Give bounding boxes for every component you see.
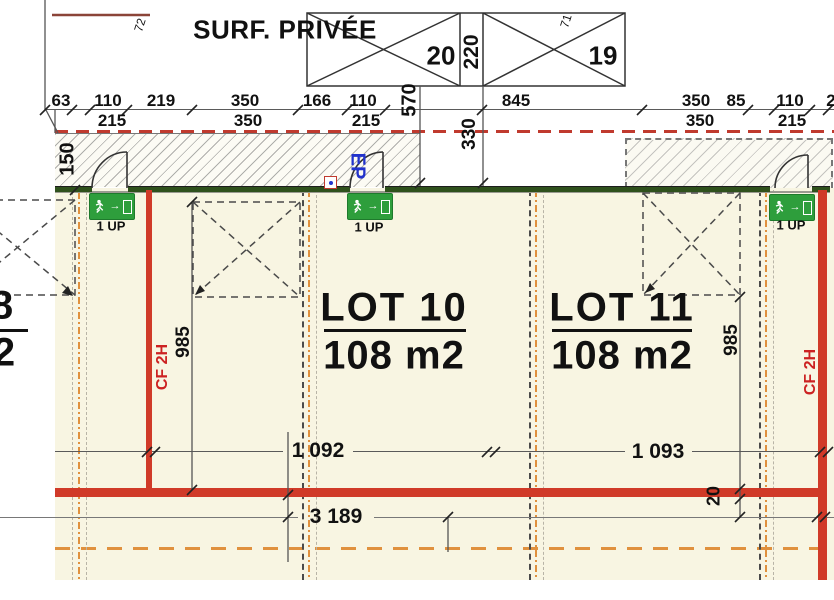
lot-separator-dashed: [302, 190, 304, 580]
dim-330: 330: [459, 118, 481, 150]
dim-line-1092-1093: [353, 451, 625, 452]
fire-wall-vertical-left: [146, 190, 152, 497]
dim-166: 166: [303, 91, 331, 111]
dim-350a: 350: [231, 91, 259, 111]
partial-lot-digit: 8: [0, 284, 13, 329]
floor-plan: → → → SURF. PRIVÉE 72 71 20 19 220 63 11…: [0, 0, 834, 600]
dim-150: 150: [57, 142, 80, 175]
wall-edge-segment: [55, 186, 92, 192]
wall-edge-segment: [128, 186, 350, 192]
exit-arrow-icon: →: [790, 202, 801, 213]
dim-215b: 215: [352, 111, 380, 131]
exit-door-icon: [123, 200, 132, 214]
dim-line-1092: [55, 451, 283, 452]
dim-1092: 1 092: [292, 439, 345, 463]
lot10-area: 108 m2: [323, 334, 465, 379]
exit-arrow-icon: →: [110, 201, 121, 212]
lot11-name: LOT 11: [549, 286, 694, 331]
dim-220: 220: [460, 34, 484, 69]
dim-line-3189-left: [0, 517, 298, 518]
dim-219: 219: [147, 91, 175, 111]
dim-20: 20: [704, 486, 725, 506]
exit-sign-caption: 1 UP: [777, 218, 806, 233]
running-man-icon: [773, 200, 788, 215]
header-box-label-20: 20: [427, 41, 456, 72]
dim-line-1093: [692, 451, 823, 452]
partial-lot-digit: 2: [0, 331, 15, 376]
axis-orange-dashdot: [765, 190, 767, 580]
exit-arrow-icon: →: [368, 201, 379, 212]
lot-separator-dashed: [529, 190, 531, 580]
lot10-underline: [324, 329, 466, 332]
dim-110a: 110: [94, 91, 121, 111]
orange-dashed-axis-horizontal: [55, 547, 834, 550]
dim-1093: 1 093: [632, 440, 685, 464]
lot10-name: LOT 10: [320, 286, 468, 331]
lot11-area: 108 m2: [551, 334, 693, 379]
exit-sign: →: [89, 193, 135, 220]
axis-gray-dashed: [86, 192, 87, 580]
dim-985-right: 985: [721, 324, 743, 356]
electrical-symbol-dot: [329, 181, 333, 185]
dim-570: 570: [399, 83, 422, 116]
exit-sign-caption: 1 UP: [355, 220, 384, 235]
dim-line-3189-right: [374, 517, 834, 518]
axis-orange-dashdot: [78, 192, 80, 580]
dim-985-left: 985: [173, 326, 195, 358]
exit-sign: →: [347, 193, 393, 220]
lot11-underline: [552, 329, 692, 332]
fire-rating-left: CF 2H: [154, 344, 172, 390]
axis-orange-dashdot: [535, 190, 537, 580]
ref-number-71: 71: [557, 12, 574, 29]
dim-2-partial: 2: [826, 91, 834, 111]
axis-gray-dashed: [543, 190, 544, 580]
electrical-symbol: [324, 176, 337, 189]
exit-door-icon: [381, 200, 390, 214]
exit-sign-caption: 1 UP: [97, 219, 126, 234]
ref-number-72: 72: [131, 16, 148, 33]
running-man-icon: [93, 199, 108, 214]
axis-gray-dashed: [72, 192, 73, 580]
dim-85: 85: [727, 91, 746, 111]
dim-350b2: 350: [686, 111, 714, 131]
ep-label: EP: [346, 153, 369, 180]
fire-rating-right: CF 2H: [802, 349, 820, 395]
dim-110c: 110: [776, 91, 803, 111]
dim-845: 845: [502, 91, 530, 111]
dim-215a: 215: [98, 111, 126, 131]
page-title: SURF. PRIVÉE: [193, 15, 377, 46]
dim-215c: 215: [778, 111, 806, 131]
running-man-icon: [351, 199, 366, 214]
axis-gray-dashed: [773, 190, 774, 580]
header-box-label-19: 19: [589, 41, 618, 72]
dim-350b: 350: [682, 91, 710, 111]
hatched-dashed-block: [625, 138, 833, 188]
dim-3189: 3 189: [310, 505, 363, 529]
lot-separator-dashed: [759, 190, 761, 580]
wall-edge-segment: [385, 186, 770, 192]
dim-350a2: 350: [234, 111, 262, 131]
exit-door-icon: [803, 201, 812, 215]
red-dashed-boundary: [55, 130, 834, 133]
dim-110b: 110: [349, 91, 376, 111]
dim-63: 63: [52, 91, 71, 111]
